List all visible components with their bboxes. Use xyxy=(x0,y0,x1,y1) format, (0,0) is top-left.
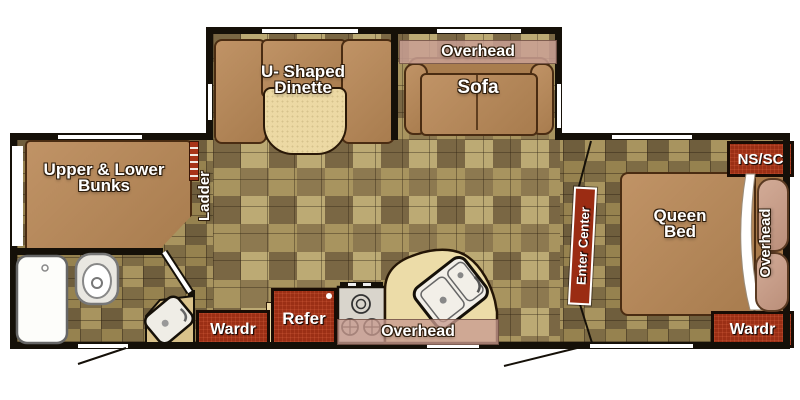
bedroom-overhead-wrap: Overhead xyxy=(753,182,779,304)
bath-door-leaf xyxy=(164,252,190,292)
living-overhead-cabinet: Overhead xyxy=(399,40,557,64)
floorplan-canvas: Upper & Lower Bunks Ladder U- Shaped Din… xyxy=(0,0,800,400)
bath-sink-icon xyxy=(142,293,196,346)
ladder-label: Ladder xyxy=(198,171,212,221)
living-overhead-label: Overhead xyxy=(441,44,515,59)
bed-label-line2: Bed xyxy=(664,224,696,240)
dinette-label-line2: Dinette xyxy=(274,80,332,96)
toilet-icon xyxy=(76,254,118,304)
kitchen-overhead-cabinet: Overhead xyxy=(337,319,499,345)
queen-bed-label: Queen Bed xyxy=(622,208,738,240)
entry-door-label: Enter Center xyxy=(573,207,592,286)
bunks-label-line2: Bunks xyxy=(78,178,130,194)
shower-icon xyxy=(17,256,67,343)
bedroom-overhead-label: Overhead xyxy=(759,208,773,277)
ladder-label-wrap: Ladder xyxy=(195,140,215,252)
kitchen-overhead-label: Overhead xyxy=(381,324,455,339)
dinette-label: U- Shaped Dinette xyxy=(236,64,370,96)
bunks-label: Upper & Lower Bunks xyxy=(28,162,180,194)
